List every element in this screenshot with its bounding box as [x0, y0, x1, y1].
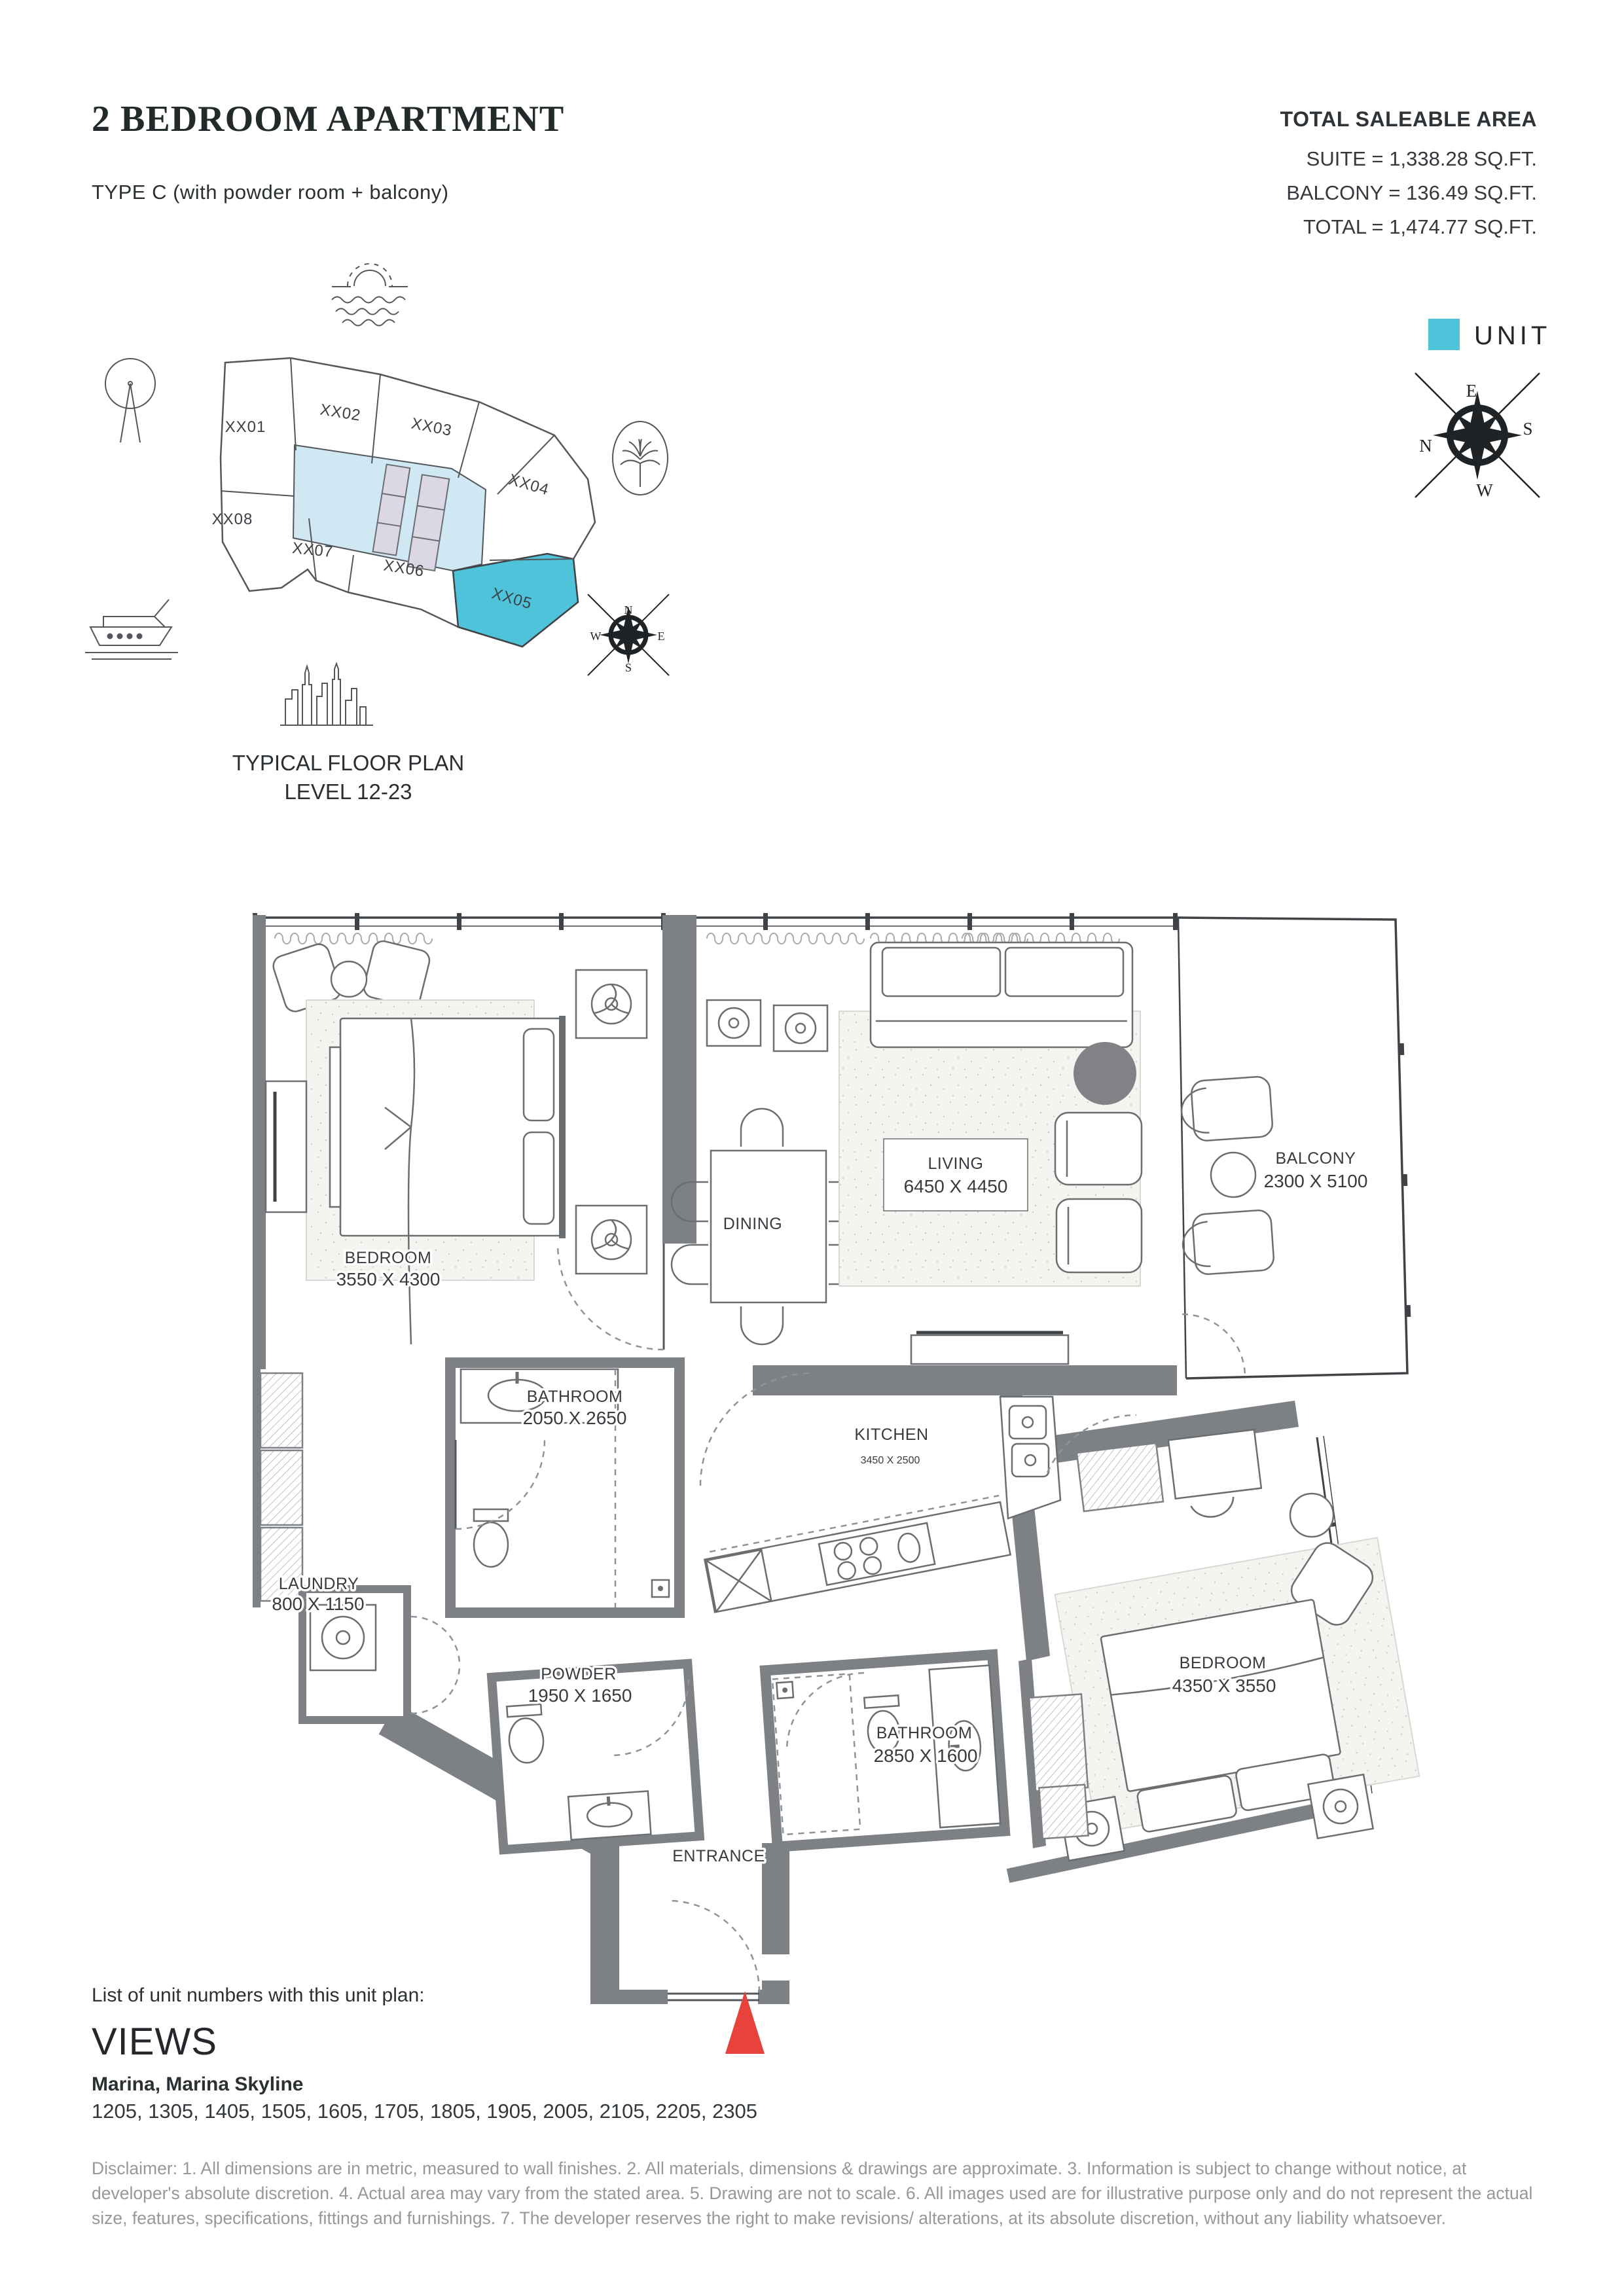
balcony-chair — [1182, 1210, 1274, 1275]
saleable-area-block: TOTAL SALEABLE AREA SUITE = 1,338.28 SQ.… — [1280, 107, 1537, 244]
palm-island-icon — [613, 422, 668, 495]
side-table-dark — [1074, 1042, 1136, 1105]
cabinet — [1077, 1443, 1163, 1511]
key-plan-building: XX01 XX02 XX03 XX04 XX05 XX06 XX07 XX08 — [212, 358, 595, 647]
living: LIVING 6450 X 4450 — [839, 942, 1142, 1364]
tv-console — [911, 1333, 1068, 1364]
area-suite: SUITE = 1,338.28 SQ.FT. — [1280, 142, 1537, 176]
compass-n-label: N — [624, 603, 633, 617]
room-label-powder: POWDER — [541, 1665, 617, 1683]
floor-plan-drawing: BALCONY 2300 X 5100 — [253, 913, 1419, 2054]
balcony-door-swing — [1182, 1314, 1245, 1376]
room-label-living: LIVING — [928, 1155, 984, 1173]
yacht-icon — [85, 600, 178, 659]
kitchen-counter-bottom — [704, 1496, 1011, 1612]
sofa — [871, 942, 1132, 1047]
key-plan-compass-icon: N E S W — [588, 594, 669, 675]
area-balcony: BALCONY = 136.49 SQ.FT. — [1280, 176, 1537, 210]
compass-w-label: W — [1476, 480, 1493, 500]
dining: DINING — [672, 1000, 865, 1344]
room-dims-bathroom2: 2850 X 1600 — [874, 1746, 978, 1766]
side-table — [331, 961, 367, 997]
room-label-bedroom1: BEDROOM — [345, 1249, 432, 1267]
area-heading: TOTAL SALEABLE AREA — [1280, 107, 1537, 132]
sea-sunset-icon — [332, 264, 408, 326]
nightstand-fan — [576, 970, 647, 1038]
views-heading: VIEWS — [92, 2020, 217, 2064]
room-label-bedroom2: BEDROOM — [1180, 1654, 1267, 1672]
laundry: LAUNDRY 800 X 1150 — [272, 1575, 460, 1720]
compass-rose-icon: E S W N — [1415, 373, 1540, 500]
entrance-door-swing — [668, 1901, 759, 1992]
room-label-laundry: LAUNDRY — [279, 1575, 359, 1593]
room-dims-living: 6450 X 4450 — [904, 1176, 1008, 1196]
unit-list-label: List of unit numbers with this unit plan… — [92, 1984, 425, 2007]
compass-n-label: N — [1419, 436, 1432, 456]
armchair — [1055, 1113, 1142, 1185]
toilet — [474, 1509, 508, 1567]
room-dims-balcony: 2300 X 5100 — [1264, 1171, 1368, 1191]
compass-e-label: E — [658, 630, 665, 643]
unit-legend-swatch — [1428, 319, 1460, 350]
room-label-dining: DINING — [723, 1215, 783, 1233]
room-label-balcony: BALCONY — [1276, 1149, 1356, 1168]
powder-room: POWDER 1950 X 1650 — [492, 1664, 700, 1850]
room-dims-powder: 1950 X 1650 — [528, 1685, 632, 1706]
bathroom2: BATHROOM 2850 X 1600 — [765, 1655, 1005, 1847]
ferris-wheel-icon — [105, 359, 155, 442]
compass-w-label: W — [590, 630, 602, 643]
bed — [340, 1016, 566, 1344]
armchair — [1056, 1199, 1142, 1272]
bedroom2: BEDROOM 4350 X 3550 — [1029, 1415, 1419, 1861]
page-subtitle: TYPE C (with powder room + balcony) — [92, 181, 449, 204]
label-box — [884, 1139, 1028, 1211]
skyline-icon — [280, 664, 373, 725]
key-plan-caption-line1: TYPICAL FLOOR PLAN — [185, 749, 512, 778]
nightstand-fan — [1308, 1774, 1373, 1839]
ceiling-fan — [707, 1000, 761, 1046]
bench — [330, 1047, 340, 1207]
key-plan-caption: TYPICAL FLOOR PLAN LEVEL 12-23 — [185, 749, 512, 806]
kitchen: KITCHEN 3450 X 2500 — [700, 1373, 1060, 1612]
compass-e-label: E — [1466, 381, 1477, 401]
room-dims-bedroom1: 3550 X 4300 — [336, 1269, 441, 1289]
plan-graphics: XX01 XX02 XX03 XX04 XX05 XX06 XX07 XX08 … — [0, 0, 1624, 2296]
compass-s-label: S — [1523, 419, 1532, 439]
key-plan: XX01 XX02 XX03 XX04 XX05 XX06 XX07 XX08 … — [85, 264, 669, 725]
balcony-chair — [1180, 1076, 1273, 1141]
views-value: Marina, Marina Skyline — [92, 2073, 303, 2096]
key-plan-unit-label: XX08 — [212, 511, 253, 528]
laundry-door-swing — [411, 1617, 460, 1665]
floor-plan-page: XX01 XX02 XX03 XX04 XX05 XX06 XX07 XX08 … — [0, 0, 1624, 2296]
page-title: 2 BEDROOM APARTMENT — [92, 98, 564, 140]
balcony-area: BALCONY 2300 X 5100 — [1178, 918, 1411, 1378]
unit-numbers-list: 1205, 1305, 1405, 1505, 1605, 1705, 1805… — [92, 2100, 757, 2123]
washer — [310, 1605, 376, 1670]
compass-s-label: S — [625, 661, 632, 674]
wardrobe — [261, 1373, 302, 1601]
room-label-bathroom1: BATHROOM — [527, 1388, 623, 1406]
unit-legend-label: UNIT — [1474, 321, 1551, 350]
room-dims-bedroom2: 4350 X 3550 — [1172, 1676, 1276, 1696]
room-dims-bathroom1: 2050 X 2650 — [523, 1408, 627, 1428]
room-label-kitchen: KITCHEN — [854, 1426, 928, 1444]
room-dims-kitchen: 3450 X 2500 — [861, 1455, 920, 1466]
disclaimer-text: Disclaimer: 1. All dimensions are in met… — [92, 2156, 1540, 2231]
room-dims-laundry: 800 X 1150 — [272, 1594, 364, 1614]
pouf — [1290, 1494, 1333, 1537]
unit-legend: UNIT — [1428, 319, 1551, 350]
entrance: ENTRANCE — [668, 1847, 765, 2054]
balcony-table — [1211, 1153, 1255, 1197]
room-label-entrance: ENTRANCE — [672, 1847, 765, 1865]
ceiling-fan — [774, 1005, 827, 1051]
armchair — [362, 939, 432, 1009]
room-label-bathroom2: BATHROOM — [876, 1724, 973, 1742]
tv-console — [266, 1081, 306, 1212]
key-plan-caption-line2: LEVEL 12-23 — [185, 778, 512, 806]
window-wall-top — [253, 913, 1178, 944]
sink — [568, 1791, 651, 1840]
key-plan-unit-label: XX01 — [225, 418, 266, 436]
desk — [1168, 1429, 1264, 1521]
laundry-door-swing — [411, 1665, 460, 1713]
nightstand-fan — [576, 1206, 647, 1274]
area-total: TOTAL = 1,474.77 SQ.FT. — [1280, 210, 1537, 244]
bathroom1: BATHROOM 2050 X 2650 — [450, 1363, 679, 1613]
